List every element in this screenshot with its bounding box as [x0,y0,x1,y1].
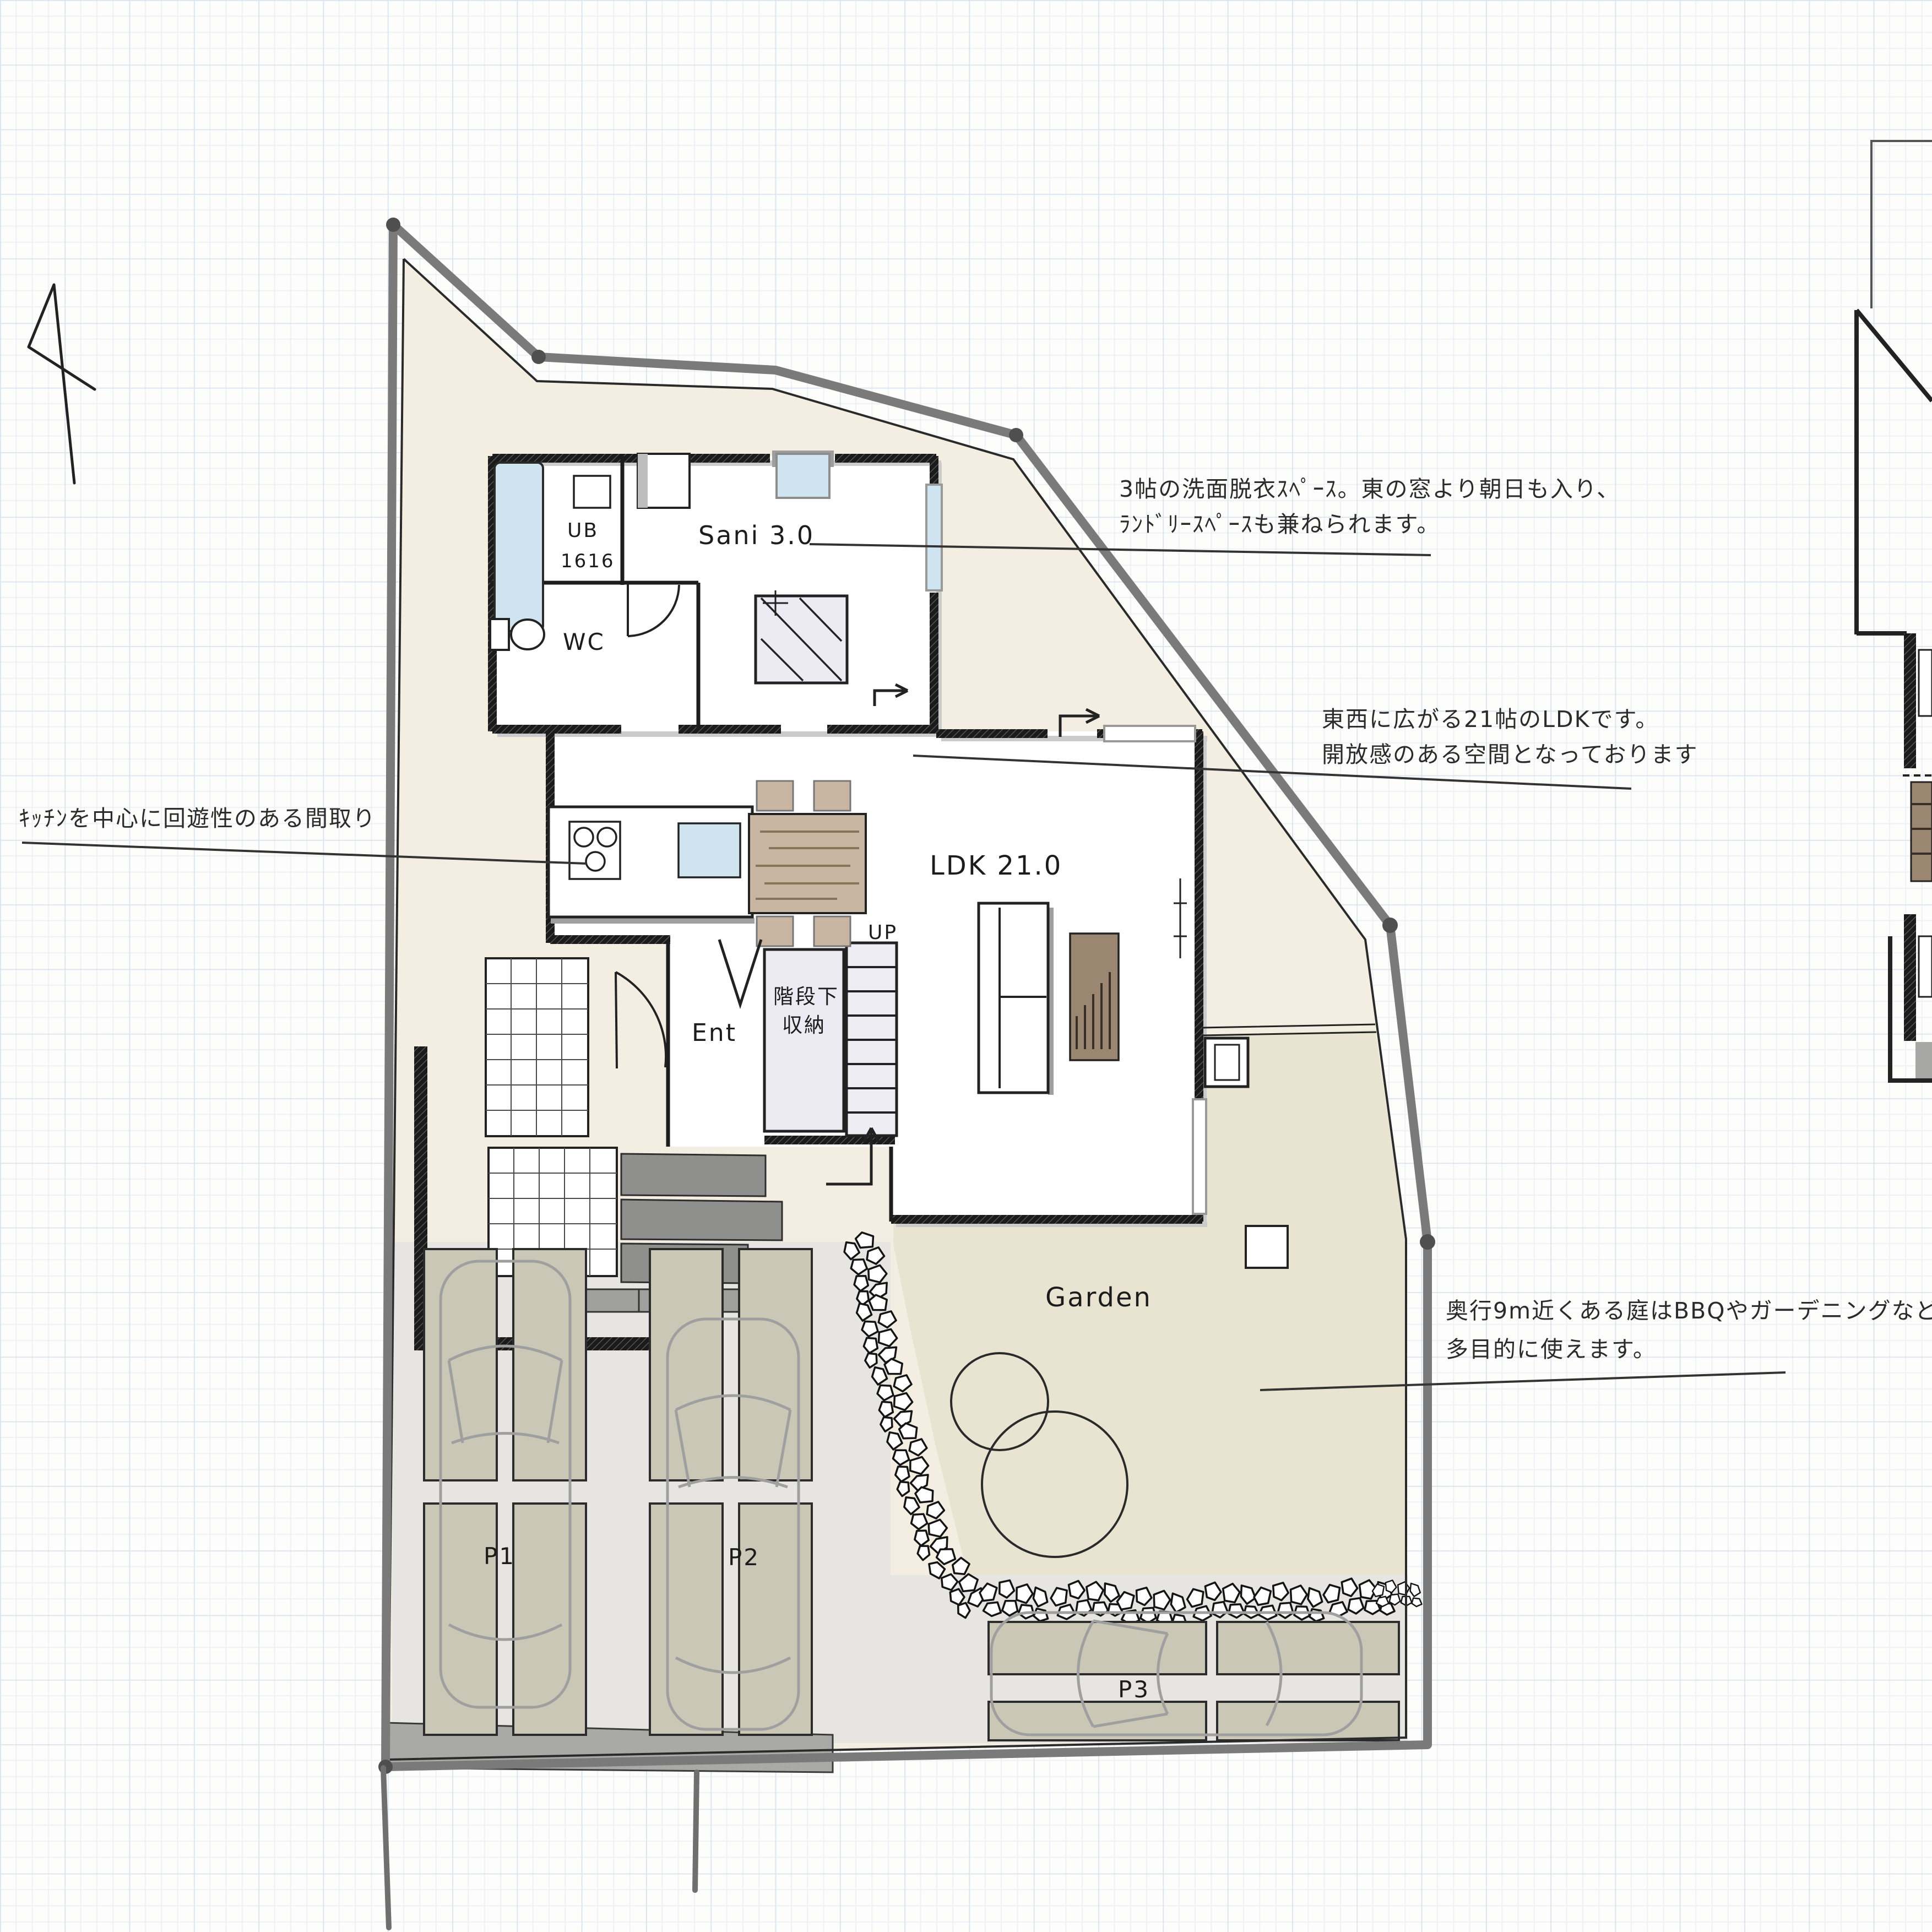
ub-size-label: 1616 [561,550,615,572]
ldk-label: LDK 21.0 [930,850,1062,881]
dining-north-window [1104,726,1195,741]
ent-label: Ent [692,1019,737,1047]
garden-annotation-line1: 奥行9m近くある庭はBBQやガーデニングなど [1446,1298,1932,1324]
ldk-annotation-line2: 開放感のある空間となっております [1322,741,1698,768]
stair-storage-label-line2: 収納 [782,1013,826,1037]
garden-annotation-line2: 多目的に使えます。 [1446,1336,1657,1363]
sani-annotation-line2: ﾗﾝﾄﾞﾘｰｽﾍﾟｰｽも兼ねられます。 [1119,511,1440,538]
toilet [490,619,544,650]
wc-label: WC [563,628,605,655]
closet [756,596,847,683]
vanity-cabinet [574,476,610,508]
east-bay-window-box [1205,1038,1248,1087]
stair-storage-label-line1: 階段下 [773,985,839,1008]
ldk-east-window [1193,1099,1206,1214]
ub-label: UB [567,519,599,542]
p3-label: P3 [1118,1676,1150,1703]
up-label: UP [868,921,898,944]
bathtub [495,463,543,631]
floor-plan-canvas: 3帖の洗面脱衣ｽﾍﾟｰｽ。東の窓より朝日も入り、 ﾗﾝﾄﾞﾘｰｽﾍﾟｰｽも兼ねら… [0,0,1932,1932]
under-stair-storage-room [764,949,844,1131]
p1-label: P1 [484,1543,515,1570]
sani-annotation-line1: 3帖の洗面脱衣ｽﾍﾟｰｽ。東の窓より朝日も入り、 [1119,476,1620,502]
kitchen-annotation: ｷｯﾁﾝを中心に回遊性のある間取り [19,805,376,832]
garden-label: Garden [1045,1282,1152,1313]
hall-east-window [926,485,942,590]
ldk-annotation-line1: 東西に広がる21帖のLDKです。 [1322,706,1659,732]
sani-label: Sani 3.0 [698,520,815,550]
south-deck-box [1246,1226,1288,1268]
p2-label: P2 [728,1544,760,1571]
kitchen-sink [679,823,740,877]
